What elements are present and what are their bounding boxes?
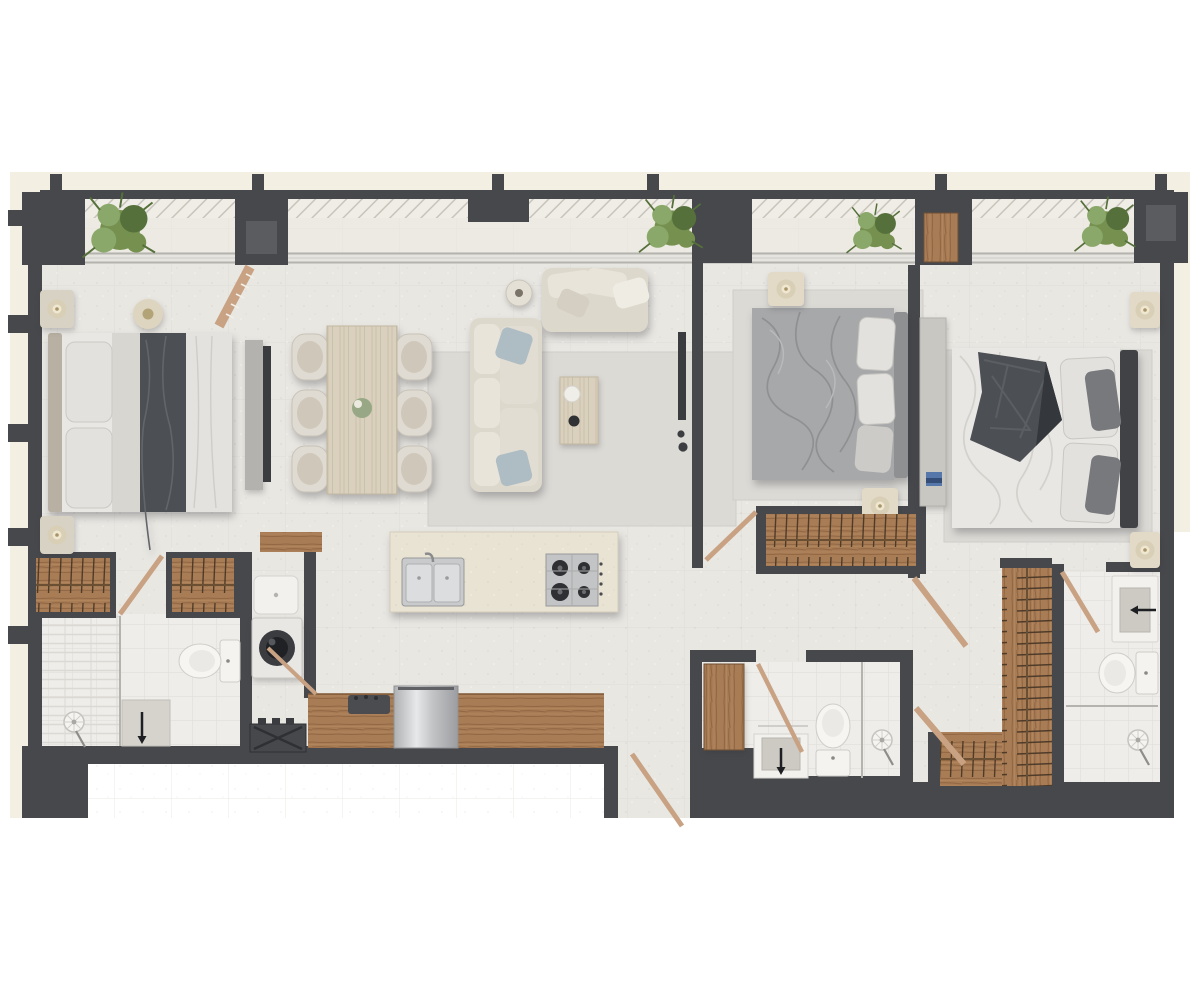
wall-step xyxy=(604,746,618,818)
knob xyxy=(599,562,602,565)
floor-lamp xyxy=(133,299,163,329)
plot-top-margin xyxy=(10,172,1190,193)
wall-bath2-right xyxy=(900,653,913,818)
kitchen-island xyxy=(390,532,618,612)
tv-bedroom-1 xyxy=(263,346,271,482)
wall-closet-top xyxy=(1000,558,1052,568)
toilet-tank xyxy=(220,640,240,682)
bed-2-pillow xyxy=(854,425,894,474)
toilet-button xyxy=(1144,671,1148,675)
bed-2-pillow xyxy=(856,317,896,371)
wall-bath2-bottom xyxy=(754,776,913,818)
column xyxy=(468,192,529,222)
wall-stub xyxy=(8,210,28,226)
column-shaft xyxy=(1146,205,1176,241)
toilet-tank xyxy=(816,750,850,776)
bed-1-headboard xyxy=(48,333,62,512)
bed-1-pillow xyxy=(66,428,112,508)
wall-stub xyxy=(8,424,28,442)
plot-left-margin xyxy=(10,192,28,818)
bed-1-nightstand-top xyxy=(40,290,74,328)
wall-bottom-lower xyxy=(913,782,1174,818)
wall-closet-left xyxy=(928,732,940,786)
wall-right xyxy=(1160,262,1174,818)
bath-2-cabinet xyxy=(704,664,744,750)
wall-closet-bath3 xyxy=(1052,564,1064,786)
bed-3-nightstand-top xyxy=(1130,292,1160,328)
bed-3-headboard xyxy=(1120,350,1138,528)
sofa-back-cushion xyxy=(474,432,500,486)
chair-seat xyxy=(401,341,427,373)
bed-2-pillow xyxy=(857,373,896,425)
bedroom-2-closet xyxy=(766,514,916,566)
coffee-machine-detail xyxy=(374,696,378,700)
decor-cup xyxy=(569,416,580,427)
wall-stub xyxy=(647,174,659,191)
wall-laundry-left xyxy=(240,552,252,748)
chair-seat xyxy=(401,453,427,485)
column-shaft xyxy=(246,221,277,254)
wall-left xyxy=(28,263,42,748)
knob xyxy=(599,592,602,595)
wall-stub xyxy=(8,315,28,333)
wall-top xyxy=(40,190,1174,199)
chair-seat xyxy=(297,341,323,373)
wall-stub xyxy=(8,626,28,644)
vanity-sink xyxy=(754,734,808,778)
floor-lamp-shade xyxy=(678,442,687,451)
bed-1-sheet xyxy=(112,333,142,512)
kitchen-counter xyxy=(308,686,604,748)
sofa-back-cushion xyxy=(474,378,500,428)
bed-1-duvet xyxy=(186,333,232,512)
toilet-seat xyxy=(822,709,844,737)
bed-2 xyxy=(752,308,908,480)
bed-2-headboard xyxy=(894,312,908,478)
chair-seat xyxy=(297,453,323,485)
toilet-button xyxy=(226,659,230,663)
kitchen-sink xyxy=(402,554,464,606)
bed-3 xyxy=(952,348,1138,528)
wall-bottom-left-block xyxy=(22,746,88,818)
toilet xyxy=(816,704,850,776)
vanity-sink xyxy=(122,700,170,746)
toilet xyxy=(1099,652,1158,694)
knob xyxy=(599,572,602,575)
bed-2-nightstand-top xyxy=(768,272,804,306)
laundry-shelf xyxy=(260,532,322,552)
wall-stub xyxy=(252,174,264,191)
wall-bottom-upper xyxy=(28,746,618,764)
wall-laundry-right xyxy=(304,552,316,698)
wall-living-bedroom2 xyxy=(692,263,703,568)
sofa-back-cushion xyxy=(474,324,500,374)
toilet-seat xyxy=(189,650,215,672)
wall-stub xyxy=(8,528,28,546)
bed-3-nightstand-bottom xyxy=(1130,532,1160,568)
toilet-button xyxy=(831,756,835,760)
cooktop xyxy=(546,554,603,606)
wall-bath2-corner xyxy=(690,748,754,818)
toilet-seat xyxy=(1104,660,1126,686)
coffee-machine-detail xyxy=(364,695,368,699)
chair-seat xyxy=(297,397,323,429)
floor-plan-image xyxy=(0,0,1200,1000)
bed-1-pillow xyxy=(66,342,112,422)
tv-console xyxy=(245,340,263,490)
wall-stub xyxy=(1155,174,1167,191)
decor-books-detail xyxy=(926,478,942,483)
utility-knob xyxy=(258,718,266,724)
centerpiece-detail xyxy=(354,400,362,408)
table-centerpiece xyxy=(352,398,372,418)
wall-stub xyxy=(492,174,504,193)
fridge xyxy=(394,686,458,748)
floor-plan-svg xyxy=(0,0,1200,1000)
vanity-sink xyxy=(1112,576,1158,642)
utility-knob xyxy=(286,718,294,724)
wood-door-panel xyxy=(924,213,958,262)
washing-machine xyxy=(252,618,302,678)
drain xyxy=(417,576,421,580)
wall-bath2-top-right xyxy=(806,650,913,662)
decor-vase xyxy=(564,386,580,402)
coffee-table xyxy=(560,377,598,444)
wall-stub xyxy=(50,174,62,191)
bed-1-nightstand-bottom xyxy=(40,516,74,554)
side-table xyxy=(506,280,532,306)
drain xyxy=(445,576,449,580)
floor-lamp-base xyxy=(677,430,684,437)
chair-seat xyxy=(401,397,427,429)
tv-living xyxy=(678,332,686,420)
dining-set xyxy=(292,326,432,494)
wall-bath2-left xyxy=(690,650,702,750)
utility-knob xyxy=(272,718,280,724)
column xyxy=(692,192,752,263)
wall-stub xyxy=(935,174,947,191)
knob xyxy=(599,582,602,585)
column xyxy=(22,192,85,265)
coffee-machine-detail xyxy=(354,696,358,700)
laundry-sink-drain xyxy=(274,593,278,597)
